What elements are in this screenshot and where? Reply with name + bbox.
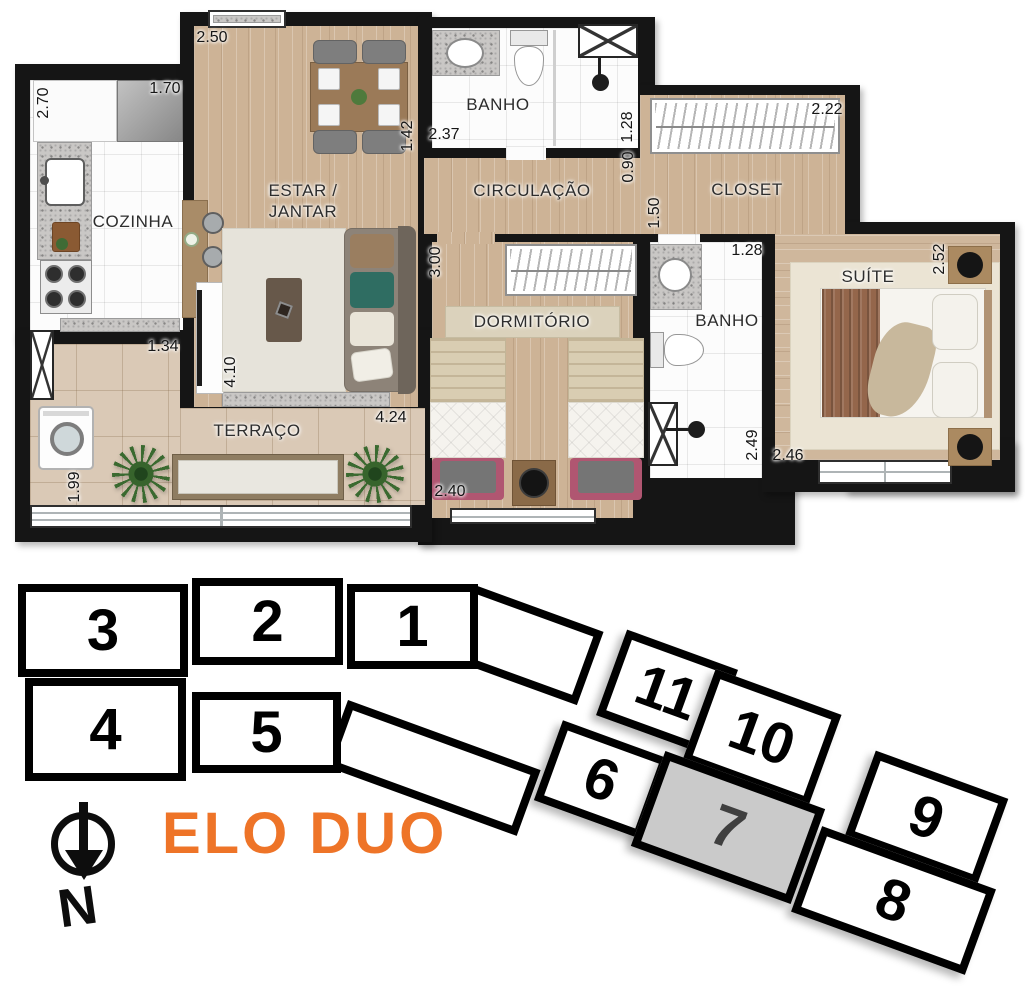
key-plan: 3 2 1 4 5 11 10 6 7 9 8 ELO DUO N <box>0 555 1025 993</box>
herb-sprig <box>56 238 68 250</box>
dim-banho-sup-largura: 2.37 <box>428 126 459 144</box>
dim-estar-largura-topo: 2.50 <box>196 29 227 47</box>
room-label-circulacao: CIRCULAÇÃO <box>473 181 590 201</box>
room-label-terraco: TERRAÇO <box>213 421 300 441</box>
tv <box>197 290 202 386</box>
keyplan-unit-5: 5 <box>192 692 341 773</box>
balcony-top-window <box>208 10 286 28</box>
dim-closet-passagem: 1.50 <box>646 197 664 228</box>
floor-plan: COZINHA ESTAR / JANTAR BANHO CIRCULAÇÃO … <box>0 0 1025 560</box>
bedroom-rack <box>505 244 637 296</box>
dim-terraco-recuo: 1.34 <box>147 338 178 356</box>
place-setting <box>378 104 400 126</box>
shaft-x-left-icon <box>30 330 54 400</box>
dim-cozinha-largura: 1.70 <box>149 80 180 98</box>
terrace-railing <box>30 505 412 528</box>
dim-cozinha-profundidade: 2.70 <box>35 87 53 118</box>
dim-dormitorio-profundidade: 3.00 <box>427 246 445 277</box>
bath2-shower-head-icon <box>688 421 705 438</box>
keyplan-unit-4: 4 <box>25 678 186 781</box>
dim-suite-profundidade: 2.52 <box>931 243 949 274</box>
living-terrace-sill <box>222 392 390 407</box>
dim-banho-sup-profundidade: 1.28 <box>619 111 637 142</box>
bath2-shower-arm <box>666 428 690 431</box>
bed-b-blanket <box>568 338 644 402</box>
suite-window <box>818 460 952 484</box>
suite-headboard <box>984 290 992 418</box>
bath1-door-opening <box>506 146 546 160</box>
room-label-estar-line1: ESTAR / <box>268 181 337 201</box>
bed-a-quilt <box>430 402 506 458</box>
room-label-cozinha: COZINHA <box>93 212 174 232</box>
room-label-banho-superior: BANHO <box>466 95 529 115</box>
dining-chair <box>313 40 357 64</box>
bath1-toilet-tank <box>510 30 548 46</box>
project-name: ELO DUO <box>162 800 447 867</box>
dining-chair <box>313 130 357 154</box>
dim-banho-suite-largura: 1.28 <box>731 242 762 260</box>
table-centerpiece <box>351 89 367 105</box>
stove <box>40 260 92 314</box>
bedroom-window <box>450 508 596 524</box>
dim-suite-largura: 2.46 <box>772 447 803 465</box>
dining-chair <box>362 40 406 64</box>
compass-north-label: N <box>54 874 101 941</box>
sofa-back <box>398 226 416 394</box>
dim-estar-lateral: 1.42 <box>399 120 417 151</box>
decor-plate <box>202 212 224 234</box>
kitchen-terrace-sill <box>60 318 180 332</box>
bath1-shower-head-icon <box>592 74 609 91</box>
compass: N <box>30 800 150 990</box>
suite-lamp-icon <box>957 252 983 278</box>
room-label-suite: SUÍTE <box>841 267 894 287</box>
bedroom-door-opening <box>437 232 495 244</box>
dim-banho-suite-profundidade: 2.49 <box>744 429 762 460</box>
keyplan-unit-3: 3 <box>18 584 188 677</box>
dim-dormitorio-largura: 2.40 <box>434 483 465 501</box>
place-setting <box>318 68 340 90</box>
bath1-sink <box>446 38 484 68</box>
bath2-door-opening <box>658 234 700 244</box>
dim-terraco-profundidade: 1.99 <box>66 471 84 502</box>
room-label-dormitorio: DORMITÓRIO <box>474 312 591 332</box>
washing-machine <box>38 406 94 470</box>
decor-plate <box>202 246 224 268</box>
dim-circulacao-largura: 0.90 <box>620 151 638 182</box>
bedroom-stool <box>519 468 549 498</box>
terrace-bench <box>172 454 344 500</box>
plant-pot <box>112 445 170 503</box>
bath2-sink <box>658 258 692 292</box>
place-setting <box>318 104 340 126</box>
kitchen-sink <box>45 158 85 206</box>
plant-pot <box>346 445 404 503</box>
suite-lamp-icon <box>957 434 983 460</box>
bed-b-bench-cushion <box>578 461 634 493</box>
sofa-cushion-teal <box>350 272 394 308</box>
bed-b-quilt <box>568 402 644 458</box>
dim-estar-profundidade: 4.10 <box>222 356 240 387</box>
sofa-cushion-cream <box>350 312 394 346</box>
place-setting <box>378 68 400 90</box>
room-label-closet: CLOSET <box>711 180 783 200</box>
room-label-banho-suite: BANHO <box>695 311 758 331</box>
bath1-divider <box>553 30 556 146</box>
kitchen-faucet <box>40 176 49 185</box>
dim-terraco-largura: 4.24 <box>375 409 406 427</box>
sofa-cushion-brown <box>350 234 394 268</box>
suite-pillow <box>932 294 978 350</box>
sofa-pillow <box>350 347 394 382</box>
room-label-estar-line2: JANTAR <box>269 202 337 222</box>
suite-pillow <box>932 362 978 418</box>
keyplan-unit-2: 2 <box>192 578 343 665</box>
bath2-toilet-tank <box>650 332 664 368</box>
shaft-x-bath2-icon <box>648 402 678 466</box>
shaft-x-bath1-icon <box>578 24 638 58</box>
brochure-image: COZINHA ESTAR / JANTAR BANHO CIRCULAÇÃO … <box>0 0 1025 993</box>
flower-vase <box>184 232 199 247</box>
keyplan-unit-1: 1 <box>347 584 478 669</box>
bed-a-blanket <box>430 338 506 402</box>
dim-closet-largura: 2.22 <box>811 101 842 119</box>
